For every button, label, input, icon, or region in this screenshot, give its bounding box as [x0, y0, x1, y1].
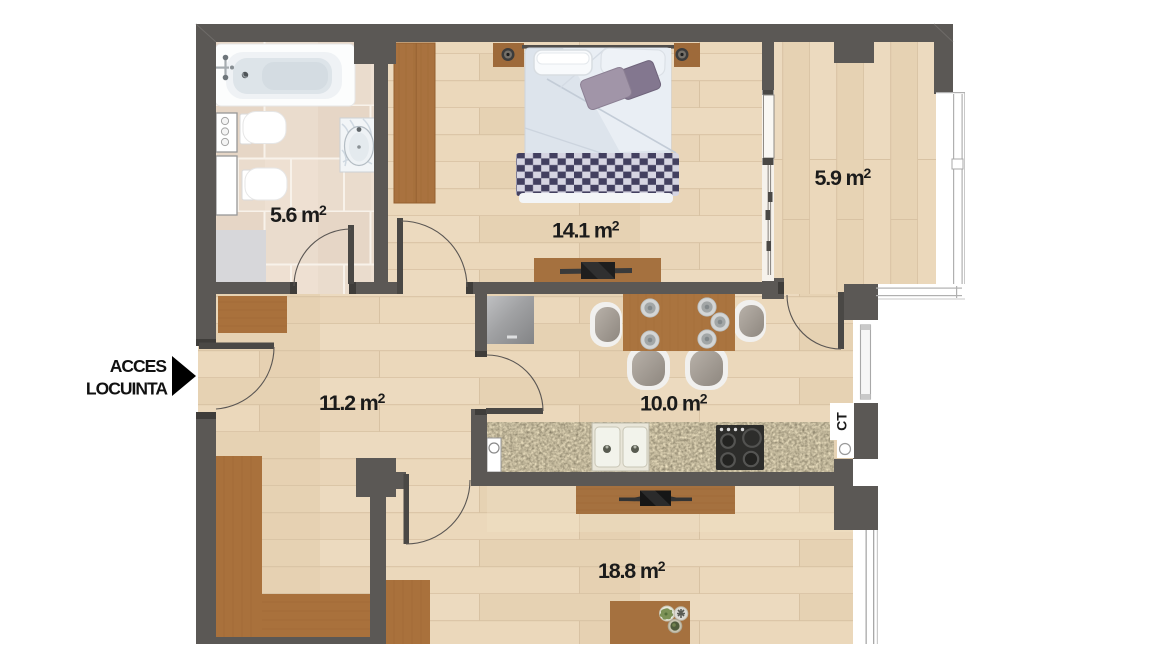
svg-text:5.9 m2: 5.9 m2	[815, 165, 872, 190]
svg-text:ACCES: ACCES	[110, 356, 167, 376]
svg-text:LOCUINTA: LOCUINTA	[86, 379, 168, 399]
svg-text:14.1 m2: 14.1 m2	[552, 218, 620, 243]
svg-text:11.2 m2: 11.2 m2	[319, 390, 386, 415]
svg-text:10.0 m2: 10.0 m2	[640, 391, 708, 416]
svg-text:5.6 m2: 5.6 m2	[270, 202, 327, 227]
svg-text:CT: CT	[834, 412, 850, 431]
svg-text:18.8 m2: 18.8 m2	[598, 558, 666, 583]
